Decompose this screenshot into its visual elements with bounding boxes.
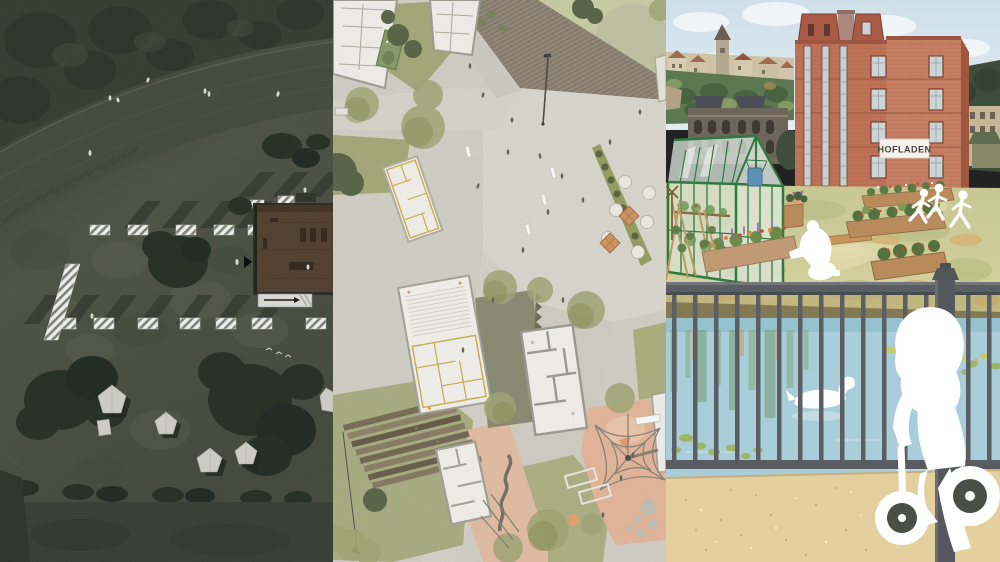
panel-garden-illustration: HOFLADEN	[666, 0, 1000, 562]
triptych-collage: HOFLADEN	[0, 0, 1000, 562]
film-grain	[0, 0, 333, 562]
brick-apartment-building: HOFLADEN	[795, 10, 969, 190]
castle-tower	[716, 40, 729, 78]
hofladen-sign: HOFLADEN	[878, 139, 932, 158]
blue-barrel	[748, 168, 762, 186]
window-strips	[804, 46, 847, 186]
hofladen-sign-text: HOFLADEN	[878, 145, 932, 155]
panel-aerial-site-plan-dark	[0, 0, 333, 562]
panel-site-plan-light	[333, 0, 666, 562]
film-grain	[333, 0, 666, 562]
